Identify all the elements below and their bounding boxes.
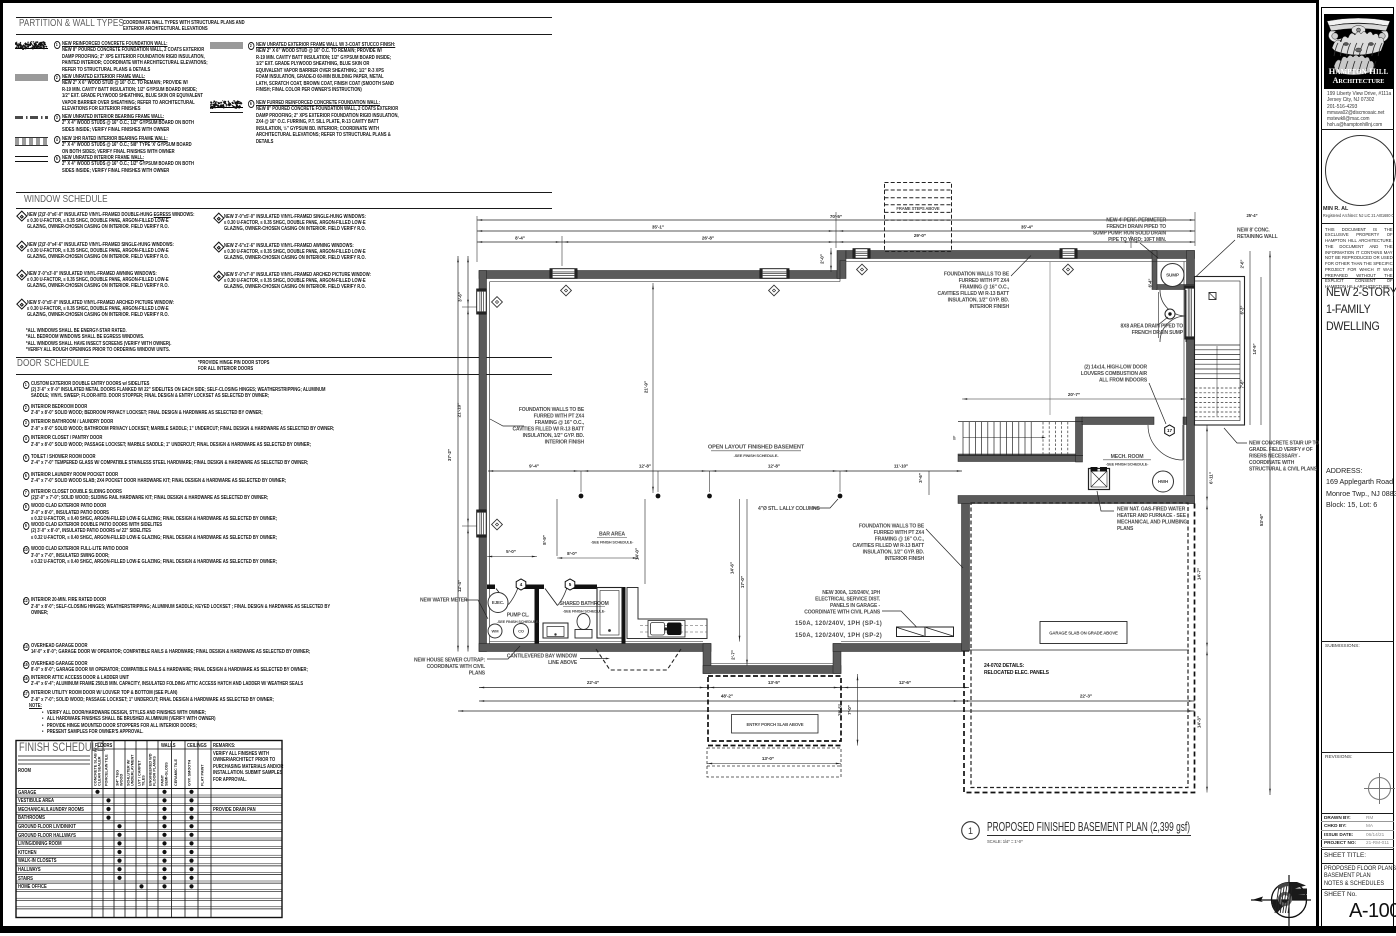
svg-text:22’-4”: 22’-4”: [587, 680, 599, 685]
svg-text:PLANS: PLANS: [1117, 526, 1134, 532]
svg-text:4”Ø STL. LALLY COLUMNS: 4”Ø STL. LALLY COLUMNS: [758, 506, 821, 512]
svg-text:24-0702 DETAILS:: 24-0702 DETAILS:: [984, 663, 1025, 669]
svg-text:35’-4”: 35’-4”: [1021, 225, 1033, 230]
svg-text:EJEC.: EJEC.: [492, 600, 504, 605]
svg-text:-SEE FINISH SCHEDULE-: -SEE FINISH SCHEDULE-: [1106, 463, 1149, 467]
svg-text:21’-9”: 21’-9”: [644, 381, 649, 393]
svg-text:48’-2”: 48’-2”: [721, 694, 733, 699]
svg-text:GRADE. FIELD VERIFY # OF: GRADE. FIELD VERIFY # OF: [1249, 447, 1313, 453]
svg-text:3’-6”: 3’-6”: [458, 292, 463, 302]
svg-text:8’-0”: 8’-0”: [567, 551, 577, 556]
svg-text:SHARED BATHROOM: SHARED BATHROOM: [559, 601, 608, 607]
svg-text:PROPOSED FINISHED BASEMENT PLA: PROPOSED FINISHED BASEMENT PLAN (2,399 g…: [987, 819, 1190, 834]
svg-text:-SEE FINISH SCHEDULE-: -SEE FINISH SCHEDULE-: [734, 453, 780, 458]
svg-text:53’-6”: 53’-6”: [1259, 514, 1264, 526]
svg-text:6’-4”: 6’-4”: [1148, 279, 1153, 288]
svg-text:ALL FROM INDOORS: ALL FROM INDOORS: [1099, 378, 1148, 384]
svg-text:8’-4”: 8’-4”: [515, 236, 525, 241]
svg-text:37’-2”: 37’-2”: [447, 449, 452, 461]
svg-text:14’-3”: 14’-3”: [1197, 716, 1202, 728]
svg-text:CAVITIES FILLED W/ R-13 BATT: CAVITIES FILLED W/ R-13 BATT: [853, 543, 925, 549]
svg-text:PLANS: PLANS: [469, 671, 486, 677]
svg-text:3’-6”: 3’-6”: [918, 473, 923, 483]
svg-text:INSULATION, 1/2” GYP. BD.: INSULATION, 1/2” GYP. BD.: [523, 433, 585, 439]
svg-text:12’-8”: 12’-8”: [639, 464, 651, 469]
svg-text:14’-9”: 14’-9”: [1252, 343, 1257, 354]
svg-text:25’-4”: 25’-4”: [1246, 213, 1257, 218]
svg-text:STRUCTURAL & CIVIL PLANS: STRUCTURAL & CIVIL PLANS: [1249, 467, 1318, 473]
svg-text:22’-3”: 22’-3”: [1080, 694, 1092, 699]
svg-text:FURRED WITH PT 2X4: FURRED WITH PT 2X4: [534, 414, 585, 420]
svg-text:17’-0”: 17’-0”: [740, 576, 745, 588]
svg-text:2’-6”: 2’-6”: [1240, 260, 1245, 269]
svg-text:8’-9”: 8’-9”: [542, 535, 547, 545]
svg-text:150A, 120/240V, 1PH (SP-2): 150A, 120/240V, 1PH (SP-2): [795, 632, 882, 639]
svg-text:ELECTRICAL SERVICE DIST.: ELECTRICAL SERVICE DIST.: [815, 597, 881, 603]
svg-text:17: 17: [1167, 428, 1173, 433]
svg-text:21’-10”: 21’-10”: [457, 403, 462, 418]
svg-text:INSULATION, 1/2” GYP. BD.: INSULATION, 1/2” GYP. BD.: [948, 298, 1010, 304]
svg-text:5: 5: [569, 582, 572, 587]
svg-text:INTERIOR FINISH: INTERIOR FINISH: [885, 556, 925, 562]
svg-text:8X8 AREA DRAIN PIPED TO: 8X8 AREA DRAIN PIPED TO: [1121, 324, 1184, 330]
svg-text:12’-8”: 12’-8”: [768, 464, 780, 469]
svg-text:FURRED WITH PT 2X4: FURRED WITH PT 2X4: [959, 278, 1010, 284]
svg-text:SUMP PUMP. RUN SOLID DRAIN: SUMP PUMP. RUN SOLID DRAIN: [1093, 231, 1167, 237]
svg-text:26’-8”: 26’-8”: [702, 236, 714, 241]
svg-text:COORDINATE WITH: COORDINATE WITH: [1249, 460, 1295, 466]
svg-text:NEW 4’ PERF. PERIMETER: NEW 4’ PERF. PERIMETER: [1106, 218, 1166, 224]
svg-text:FURRED WITH PT 2X4: FURRED WITH PT 2X4: [874, 530, 925, 536]
svg-text:FRENCH DRAIN PIPED TO: FRENCH DRAIN PIPED TO: [1106, 224, 1166, 230]
svg-text:HWH: HWH: [1158, 479, 1168, 484]
svg-text:CAVITIES FILLED W/ R-13 BATT: CAVITIES FILLED W/ R-13 BATT: [513, 427, 585, 433]
svg-text:-SEE FINISH SCHEDULE-: -SEE FINISH SCHEDULE-: [591, 541, 634, 545]
svg-text:RELOCATED ELEC. PANELS: RELOCATED ELEC. PANELS: [984, 670, 1050, 676]
svg-text:COORDINATE WITH CIVIL: COORDINATE WITH CIVIL: [427, 664, 486, 670]
svg-text:-SEE FINISH SCHEDULE-: -SEE FINISH SCHEDULE-: [497, 620, 540, 624]
svg-text:2’-0”: 2’-0”: [820, 254, 825, 264]
svg-text:WM: WM: [492, 628, 500, 633]
svg-text:FRAMING @ 16” O.C.,: FRAMING @ 16” O.C.,: [875, 537, 925, 543]
svg-text:ENTRY PORCH SLAB ABOVE: ENTRY PORCH SLAB ABOVE: [747, 722, 804, 727]
svg-text:UP: UP: [953, 435, 957, 440]
svg-text:29’-0”: 29’-0”: [914, 233, 926, 238]
svg-text:GARAGE SLAB ON GRADE ABOVE: GARAGE SLAB ON GRADE ABOVE: [1049, 631, 1118, 636]
svg-text:INTERIOR FINISH: INTERIOR FINISH: [970, 304, 1010, 310]
svg-text:INTERIOR FINISH: INTERIOR FINISH: [545, 440, 585, 446]
svg-text:NEW CONCRETE STAIR UP TO: NEW CONCRETE STAIR UP TO: [1249, 441, 1319, 447]
svg-text:NEW WATER METER: NEW WATER METER: [420, 598, 468, 604]
svg-text:FRAMING @ 16” O.C.,: FRAMING @ 16” O.C.,: [535, 420, 585, 426]
svg-text:CO: CO: [518, 628, 524, 633]
svg-text:COORDINATE WITH CIVIL PLANS: COORDINATE WITH CIVIL PLANS: [804, 610, 881, 616]
svg-text:2’-7”: 2’-7”: [731, 650, 736, 660]
svg-text:13’-0”: 13’-0”: [762, 756, 774, 761]
svg-text:FRENCH DRAIN SUMP: FRENCH DRAIN SUMP: [1132, 330, 1184, 336]
svg-text:RISERS NECESSARY -: RISERS NECESSARY -: [1249, 454, 1301, 460]
svg-text:MECHANICAL AND PLUMBING: MECHANICAL AND PLUMBING: [1117, 520, 1187, 526]
svg-text:SCALE: 1/4” = 1’-0”: SCALE: 1/4” = 1’-0”: [987, 839, 1023, 844]
svg-text:(2) 14x14, HIGH-LOW DOOR: (2) 14x14, HIGH-LOW DOOR: [1084, 365, 1147, 371]
svg-text:7’-0”: 7’-0”: [847, 705, 852, 715]
svg-text:-SEE FINISH SCHEDULE-: -SEE FINISH SCHEDULE-: [563, 610, 606, 614]
svg-text:9’-4”: 9’-4”: [529, 464, 539, 469]
svg-text:OPEN LAYOUT FINISHED BASEMENT: OPEN LAYOUT FINISHED BASEMENT: [708, 445, 805, 451]
svg-text:LINE ABOVE: LINE ABOVE: [548, 660, 578, 666]
svg-text:FOUNDATION WALLS TO BE: FOUNDATION WALLS TO BE: [859, 524, 925, 530]
svg-text:14’-6”: 14’-6”: [730, 562, 735, 574]
svg-text:12’-4”: 12’-4”: [457, 580, 462, 592]
svg-text:INSULATION, 1/2” GYP. BD.: INSULATION, 1/2” GYP. BD.: [863, 550, 925, 556]
svg-text:FRAME STEPS ABOVE: FRAME STEPS ABOVE: [896, 206, 939, 211]
svg-text:150A, 120/240V, 1PH (SP-1): 150A, 120/240V, 1PH (SP-1): [795, 620, 882, 627]
svg-text:PUMP CL.: PUMP CL.: [507, 613, 530, 619]
svg-text:FOUNDATION WALLS TO BE: FOUNDATION WALLS TO BE: [519, 407, 585, 413]
svg-text:NEW 8’ CONC.: NEW 8’ CONC.: [1237, 228, 1270, 234]
svg-text:12’-6”: 12’-6”: [899, 680, 911, 685]
svg-text:HEATER AND FURNACE - SEE: HEATER AND FURNACE - SEE: [1117, 513, 1187, 519]
svg-text:PIPE TO YARD; 10FT MIN.: PIPE TO YARD; 10FT MIN.: [1108, 237, 1167, 243]
svg-text:5’-0”: 5’-0”: [506, 549, 516, 554]
svg-text:14’-7”: 14’-7”: [1197, 568, 1202, 580]
svg-text:CANTILEVERED BAY WINDOW: CANTILEVERED BAY WINDOW: [507, 654, 578, 660]
svg-text:SUMP: SUMP: [1166, 273, 1179, 278]
svg-text:6’-11”: 6’-11”: [1209, 472, 1214, 484]
svg-text:CAVITIES FILLED W/ R-13 BATT: CAVITIES FILLED W/ R-13 BATT: [938, 291, 1010, 297]
svg-text:1: 1: [968, 826, 973, 836]
svg-text:PANELS IN GARAGE -: PANELS IN GARAGE -: [830, 603, 880, 609]
svg-text:20’-7”: 20’-7”: [1068, 392, 1080, 397]
svg-text:LOUVERS COMBUSTION AIR: LOUVERS COMBUSTION AIR: [1081, 371, 1148, 377]
svg-text:BAR AREA: BAR AREA: [599, 532, 625, 538]
svg-text:RETAINING WALL: RETAINING WALL: [1237, 234, 1278, 240]
svg-text:4: 4: [520, 582, 523, 587]
svg-text:FOUNDATION WALLS TO BE: FOUNDATION WALLS TO BE: [944, 272, 1010, 278]
svg-text:FRAMING @ 16” O.C.,: FRAMING @ 16” O.C.,: [960, 285, 1010, 291]
svg-text:11’-10”: 11’-10”: [894, 464, 908, 469]
svg-text:NEW HOUSE SEWER CUTRAP:: NEW HOUSE SEWER CUTRAP:: [414, 658, 485, 664]
svg-text:MECH. ROOM: MECH. ROOM: [1111, 454, 1144, 460]
svg-text:NEW 300A, 120/240V, 1PH: NEW 300A, 120/240V, 1PH: [822, 590, 880, 596]
svg-text:NEW NAT. GAS-FIRED WATER: NEW NAT. GAS-FIRED WATER: [1117, 507, 1186, 513]
svg-text:35’-1”: 35’-1”: [652, 225, 664, 230]
svg-text:13’-5”: 13’-5”: [768, 680, 780, 685]
